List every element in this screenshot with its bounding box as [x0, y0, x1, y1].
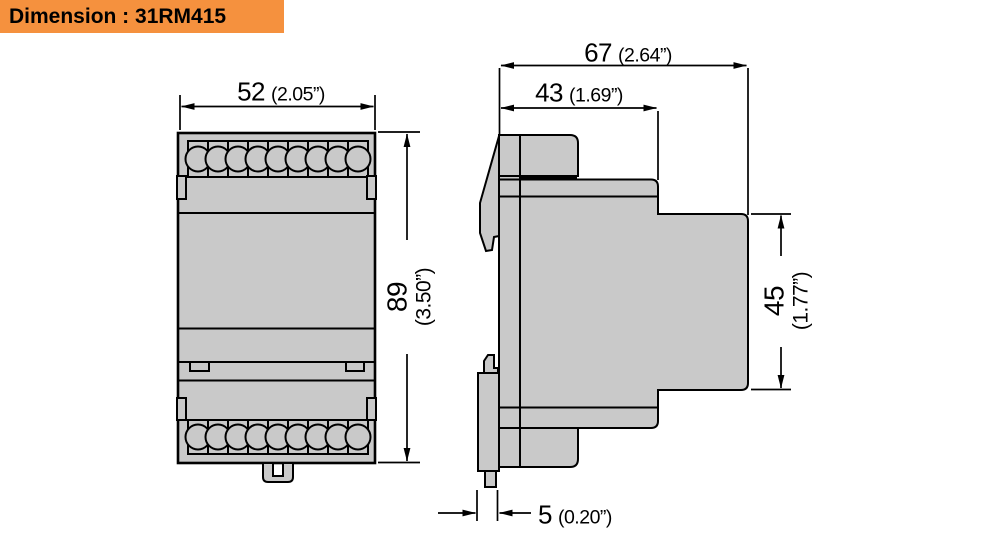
terminal-screw — [346, 425, 371, 450]
dim-front-height-inch: (3.50”) — [413, 268, 434, 326]
side-din-clip-bottom — [478, 373, 499, 471]
side-top-terminal-block — [499, 135, 578, 176]
side-view — [478, 135, 748, 487]
dim-front-height-mm: 89 — [384, 282, 413, 312]
dim-side-rear-height-label: 45 (1.77”) — [761, 272, 812, 330]
dim-side-total-depth-label: 67 (2.64”) — [584, 38, 672, 69]
dim-front-width-mm: 52 — [237, 77, 265, 108]
dimension-drawing-page: Dimension : 31RM415 — [0, 0, 1000, 540]
front-bottom-terminals — [186, 420, 371, 454]
front-top-terminals — [186, 141, 371, 177]
dim-side-clip-offset-mm: 5 — [538, 500, 552, 531]
terminal-screw — [346, 147, 371, 172]
front-view-outline — [178, 133, 375, 463]
side-lower-band — [499, 408, 658, 429]
technical-drawing — [0, 0, 1000, 540]
side-main-body — [520, 197, 748, 408]
side-din-hook-top — [480, 136, 499, 251]
dim-front-width-inch: (2.05”) — [271, 84, 325, 107]
dim-side-upper-depth-mm: 43 — [535, 78, 563, 109]
side-din-clip-foot — [485, 471, 496, 487]
dim-side-clip-offset-label: 5 (0.20”) — [538, 500, 612, 531]
dim-side-rear-height-inch: (1.77”) — [790, 272, 811, 330]
dim-front-height-label: 89 (3.50”) — [384, 268, 435, 326]
dim-side-clip-offset-inch: (0.20”) — [558, 507, 612, 530]
dim-side-total-depth-mm: 67 — [584, 38, 612, 69]
side-bottom-terminal-block — [499, 428, 578, 467]
front-din-tab — [263, 463, 293, 482]
side-din-clip-nub — [484, 355, 498, 373]
front-view — [177, 133, 376, 482]
dim-side-upper-depth-label: 43 (1.69”) — [535, 78, 623, 109]
dim-lines-side-clip-offset — [438, 490, 531, 521]
side-upper-band — [499, 180, 658, 197]
dim-side-total-depth-inch: (2.64”) — [618, 45, 672, 68]
dim-front-width-label: 52 (2.05”) — [237, 77, 325, 108]
dim-side-upper-depth-inch: (1.69”) — [569, 85, 623, 108]
dim-side-rear-height-mm: 45 — [761, 286, 790, 316]
